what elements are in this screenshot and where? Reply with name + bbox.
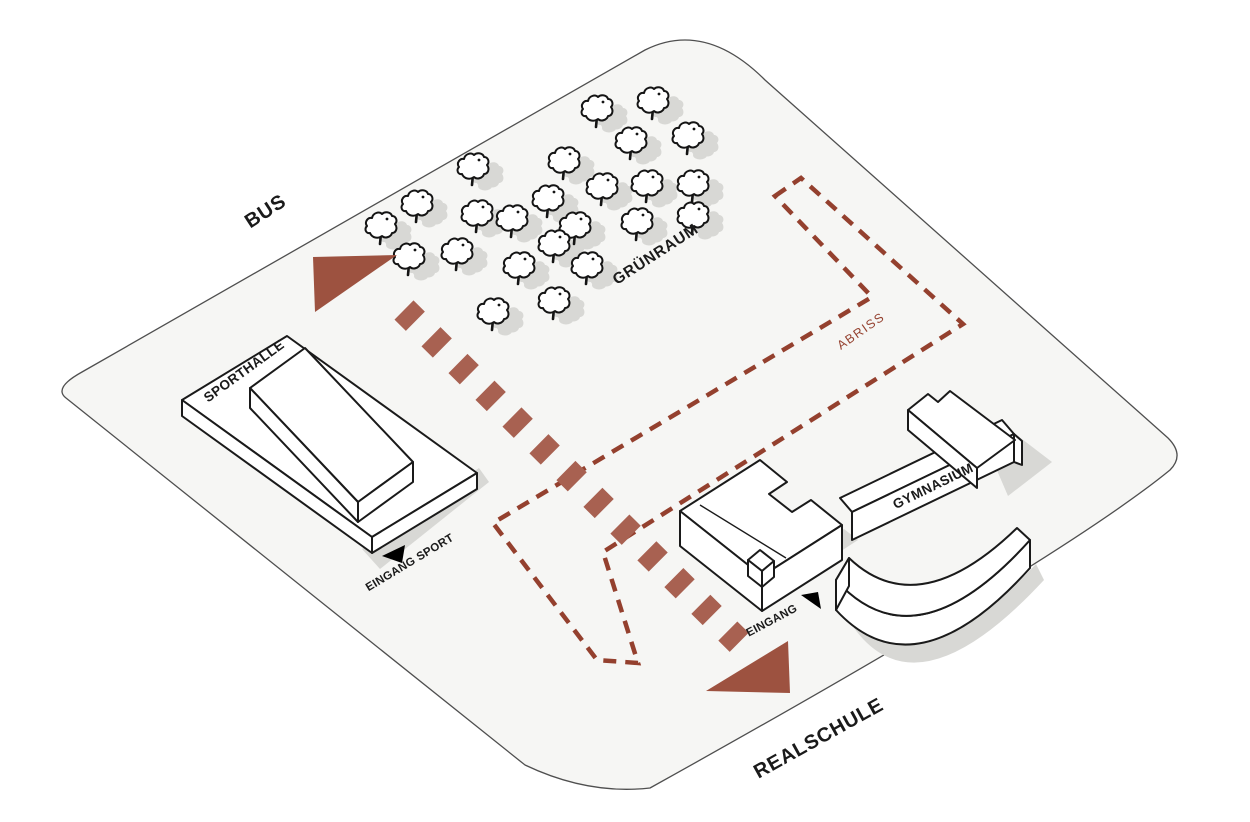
site-diagram-canvas — [0, 0, 1250, 822]
site-diagram: BUS GRÜNRAUM ABRISS SPORTHALLE EINGANG S… — [0, 0, 1250, 822]
